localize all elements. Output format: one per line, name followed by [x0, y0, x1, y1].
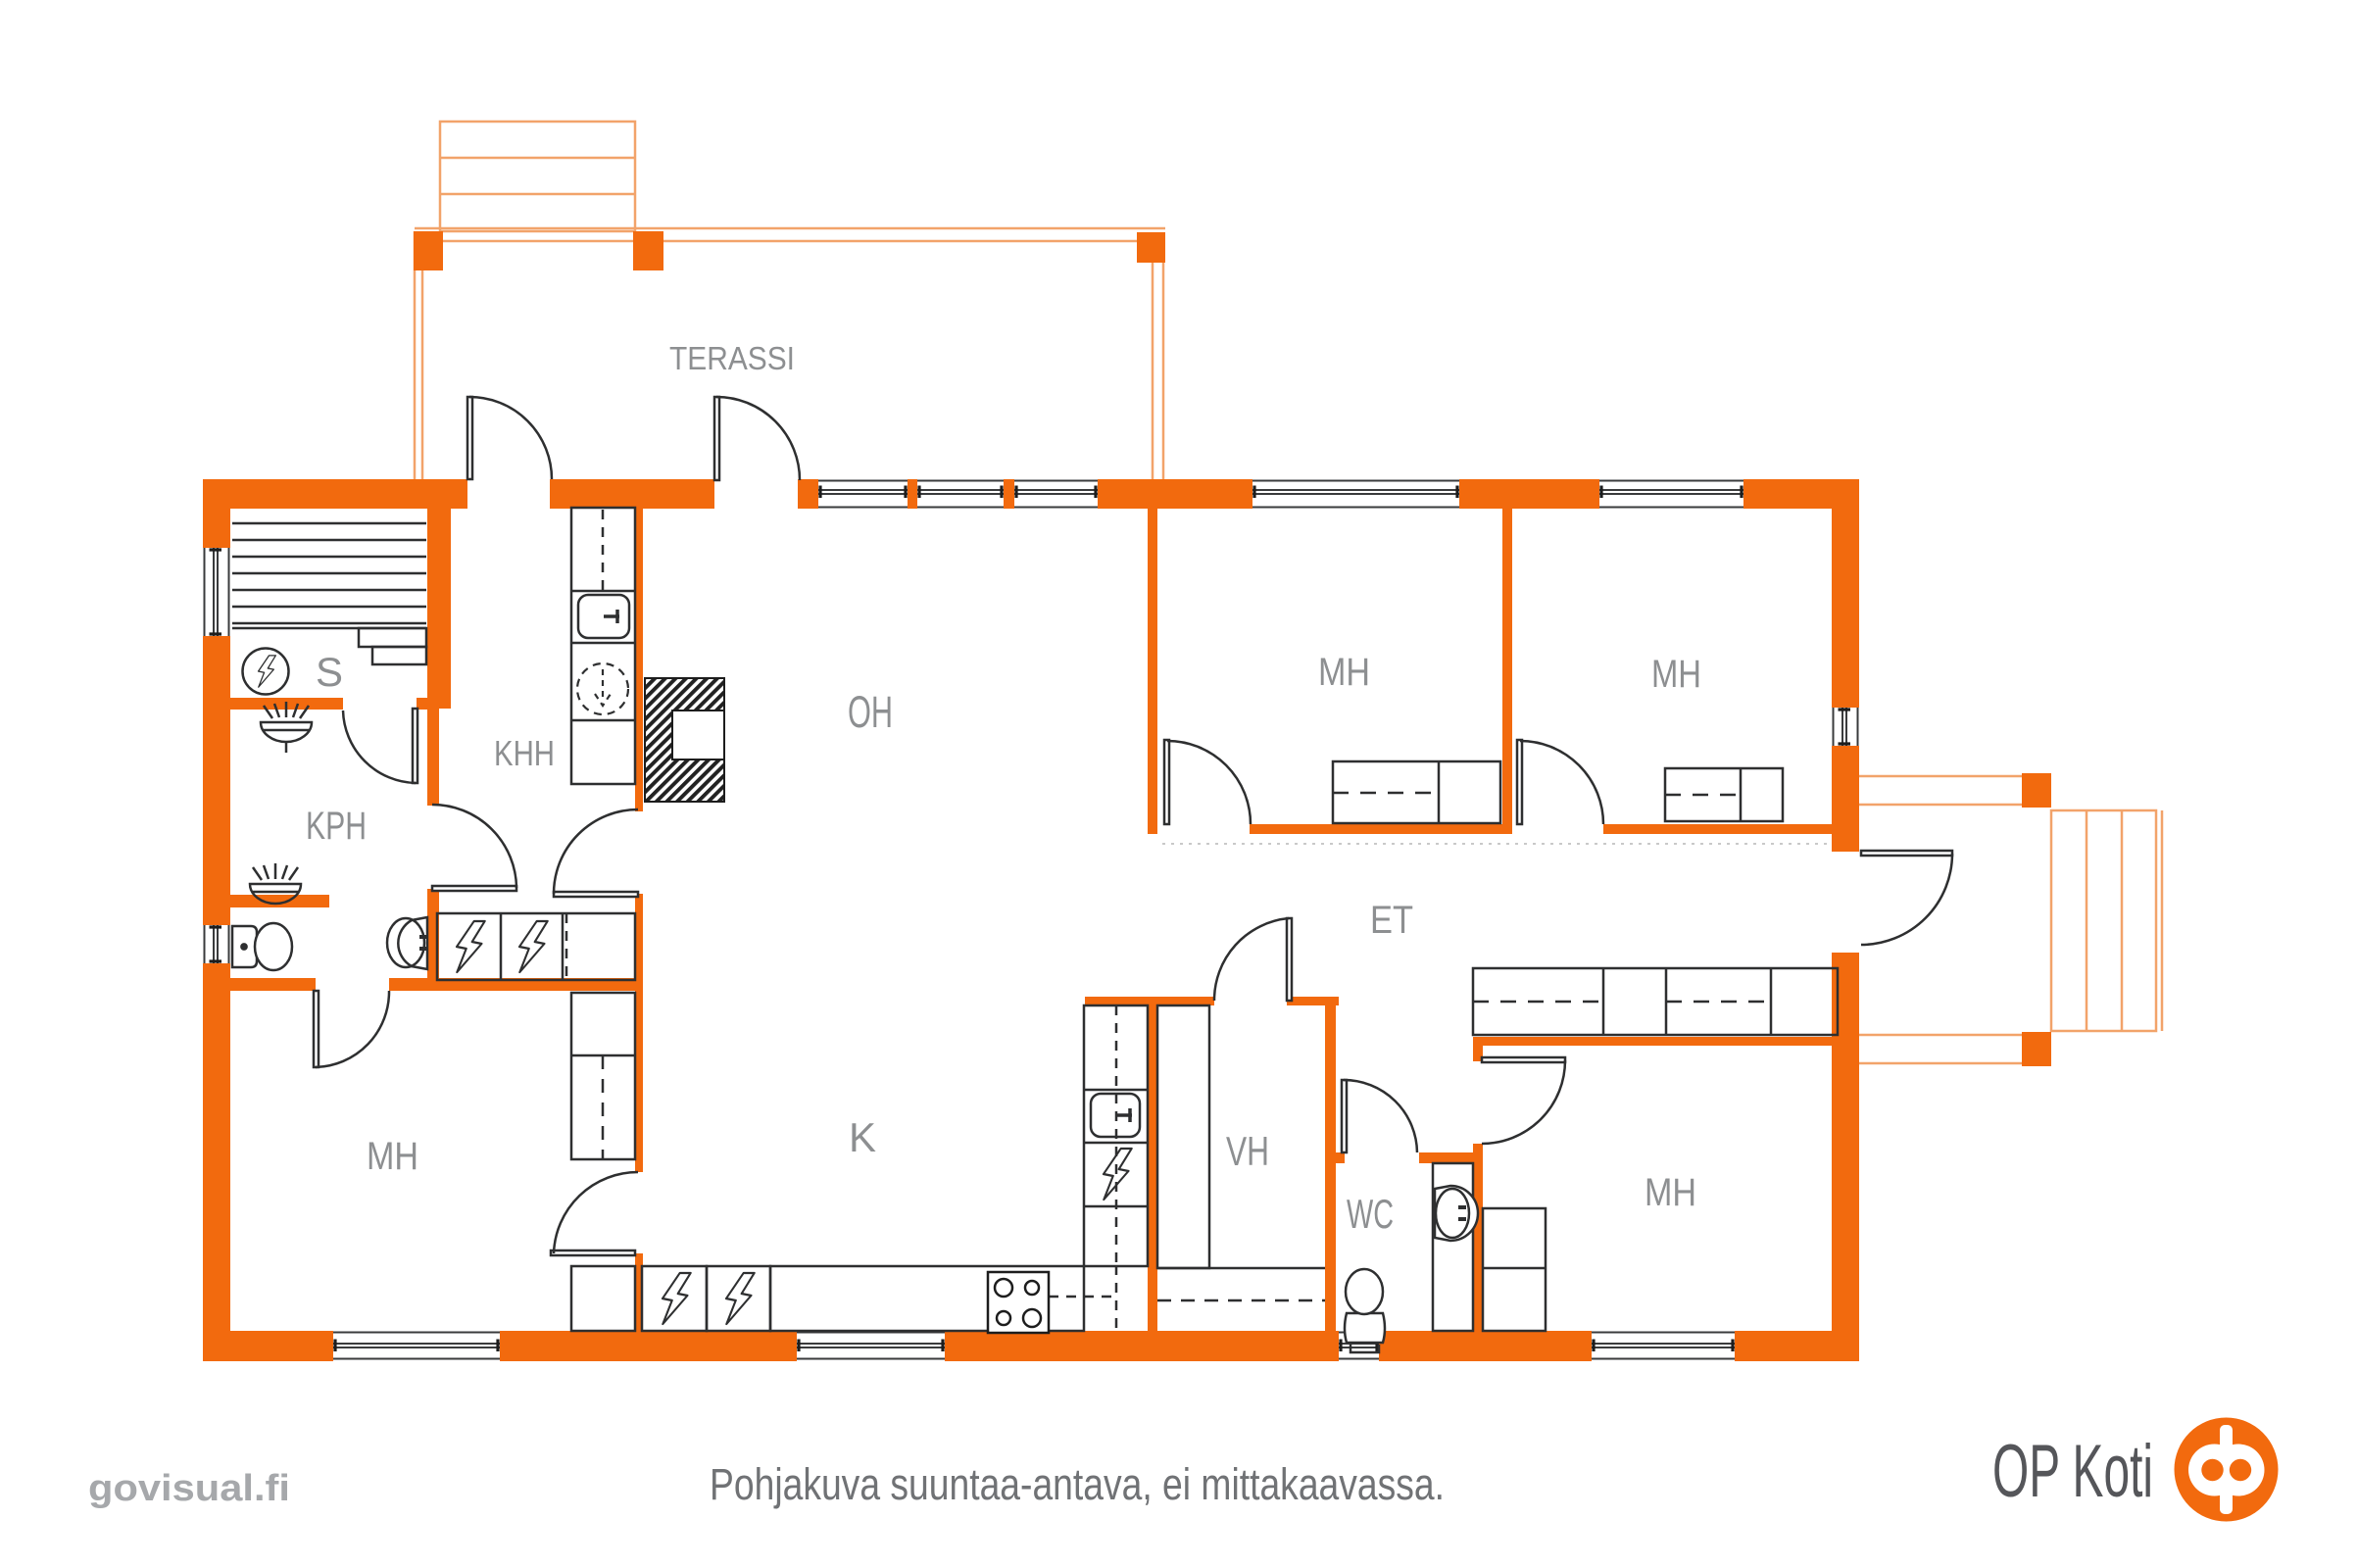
svg-text:MH: MH — [1645, 1171, 1696, 1214]
svg-text:MH: MH — [1651, 653, 1701, 696]
svg-text:MH: MH — [367, 1135, 418, 1178]
svg-text:TERASSI: TERASSI — [669, 340, 795, 376]
svg-text:S: S — [316, 649, 343, 695]
svg-text:Pohjakuva suuntaa-antava, ei m: Pohjakuva suuntaa-antava, ei mittakaavas… — [710, 1459, 1445, 1509]
svg-text:govisual.fi: govisual.fi — [88, 1468, 290, 1509]
svg-text:KPH: KPH — [306, 805, 367, 848]
svg-text:K: K — [849, 1114, 876, 1160]
svg-text:OH: OH — [848, 687, 893, 737]
svg-text:ET: ET — [1370, 899, 1413, 942]
svg-text:VH: VH — [1226, 1128, 1269, 1174]
svg-text:KHH: KHH — [494, 733, 555, 773]
svg-text:WC: WC — [1347, 1191, 1394, 1237]
svg-text:MH: MH — [1318, 651, 1370, 694]
svg-text:OP Koti: OP Koti — [1992, 1430, 2153, 1513]
